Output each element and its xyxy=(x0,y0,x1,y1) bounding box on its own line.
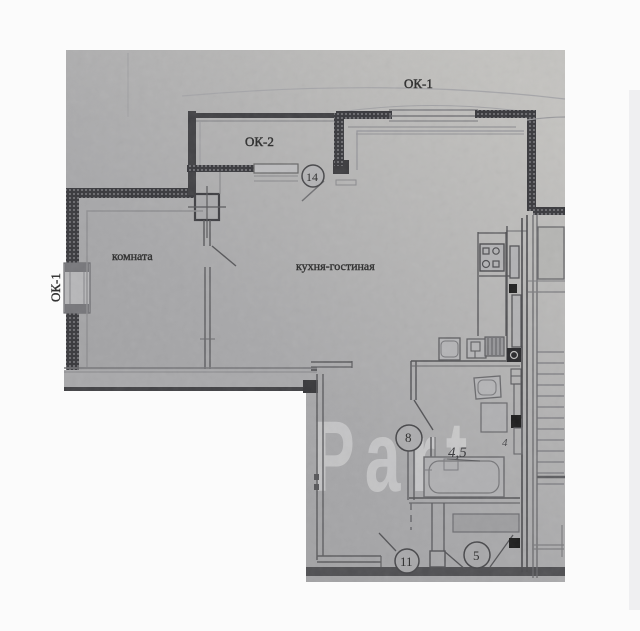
svg-text:ОК-1: ОК-1 xyxy=(48,273,63,302)
